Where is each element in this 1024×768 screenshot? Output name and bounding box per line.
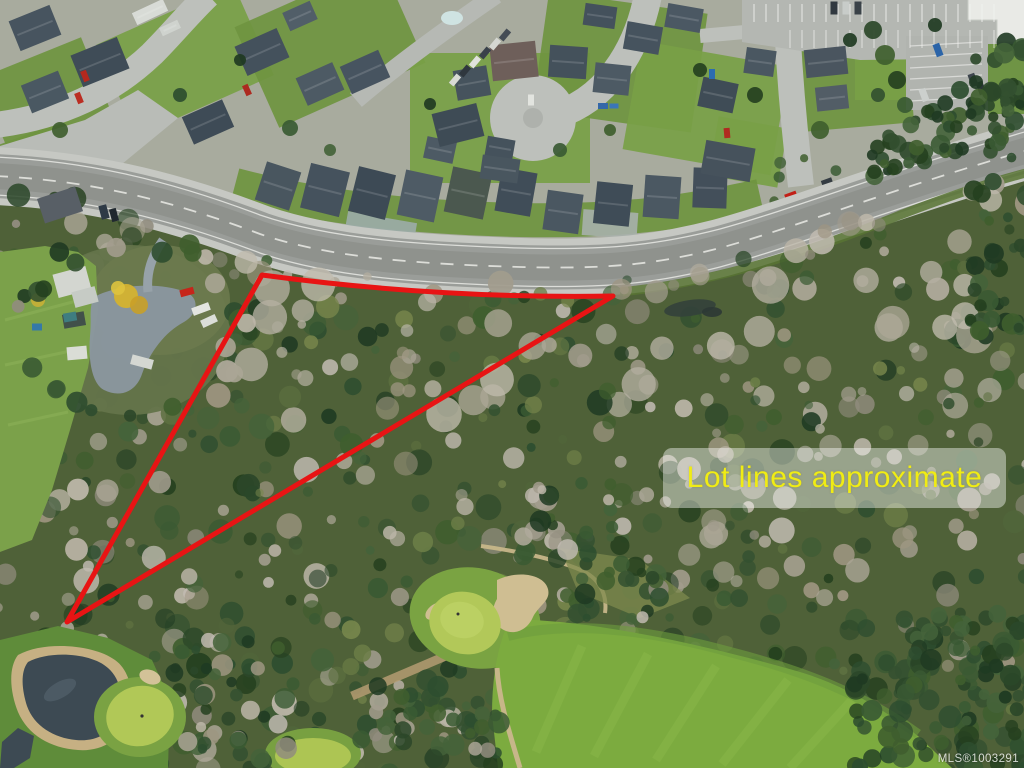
mls-watermark: MLS®1003291	[938, 753, 1019, 765]
aerial-photo	[0, 0, 1024, 768]
lot-lines-label: Lot lines approximate	[663, 448, 1006, 508]
listing-photo: Lot lines approximate MLS®1003291	[0, 0, 1024, 768]
